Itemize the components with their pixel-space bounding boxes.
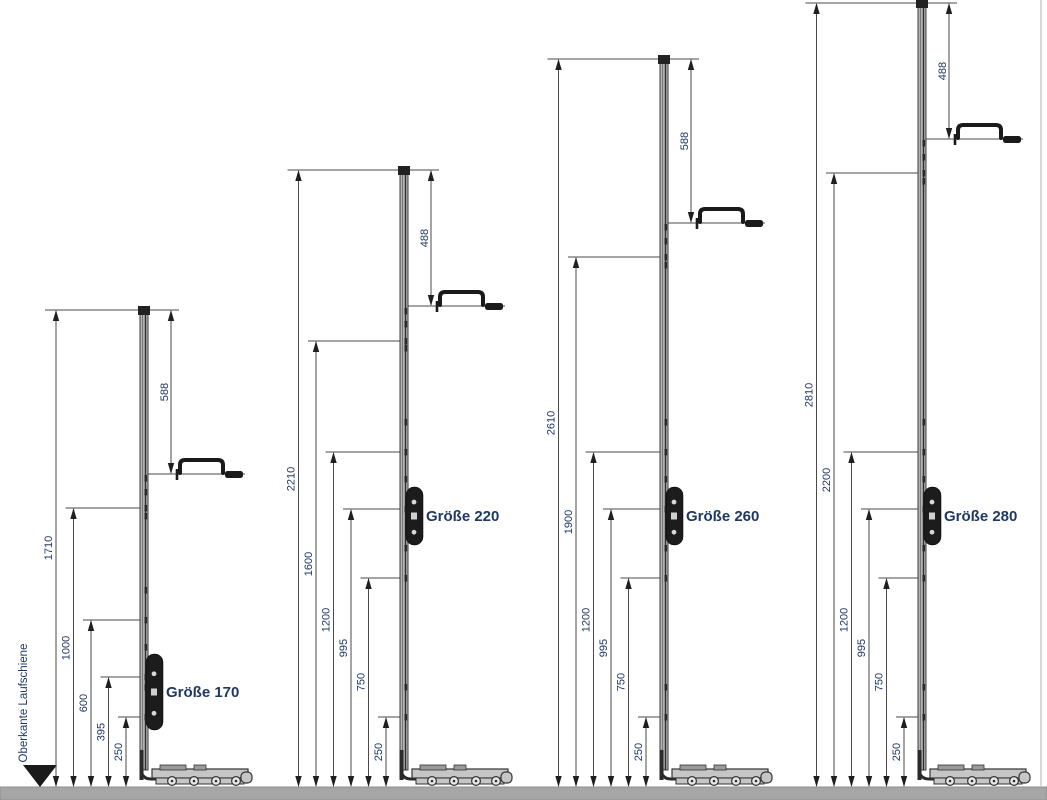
rail-tick (405, 449, 408, 456)
carriage-detail (938, 765, 964, 770)
arrowhead-up-icon (295, 170, 301, 181)
rail-profile (660, 59, 668, 770)
rail-tick (405, 338, 408, 345)
carriage-wheel-hub (993, 780, 996, 783)
arrowhead-up-icon (590, 452, 596, 463)
carriage-wheel-hub (691, 780, 694, 783)
rail-top-cap (398, 166, 410, 175)
dimension-label: 1200 (580, 608, 592, 632)
arrowhead-up-icon (365, 578, 371, 589)
carriage-wheel-hub (713, 780, 716, 783)
dimension-label: 750 (873, 673, 885, 691)
arrowhead-up-icon (866, 509, 872, 520)
arrowhead-up-icon (383, 717, 389, 728)
rail-tick (923, 154, 926, 161)
arrowhead-down-icon (608, 776, 614, 787)
handle (700, 209, 743, 222)
running-rail (0, 787, 1047, 800)
dimension-label: 1900 (563, 510, 575, 534)
rail-tick (665, 714, 668, 721)
rail-tick (923, 140, 926, 147)
rail-tick (665, 419, 668, 426)
rail-tick (145, 587, 148, 594)
arrowhead-down-icon (88, 776, 94, 787)
gear-detail (930, 500, 935, 505)
carriage-wheel-hub (453, 780, 456, 783)
reference-label: Oberkante Laufschiene (18, 628, 30, 778)
rail-top-cap (916, 0, 928, 8)
gear-detail (412, 530, 417, 535)
arrowhead-down-icon (831, 776, 837, 787)
arrowhead-up-icon (946, 3, 952, 14)
rail-tick (405, 575, 408, 582)
arrowhead-up-icon (901, 717, 907, 728)
carriage-detail (680, 765, 706, 770)
arrowhead-up-icon (831, 173, 837, 184)
arrowhead-down-icon (53, 776, 59, 787)
arrowhead-down-icon (625, 776, 631, 787)
rail-tick (145, 489, 148, 496)
arrowhead-up-icon (813, 3, 819, 14)
rail-top-cap (658, 55, 670, 64)
rail-tick (665, 684, 668, 691)
carriage-wheel-hub (171, 780, 174, 783)
handle-dimension-label: 588 (159, 383, 171, 401)
carriage-wheel-hub (215, 780, 218, 783)
arrowhead-up-icon (313, 341, 319, 352)
carriage-wheel-hub (949, 780, 952, 783)
dimension-label: 250 (113, 743, 125, 761)
rail-tick (405, 714, 408, 721)
arrowhead-up-icon (555, 59, 561, 70)
arrowhead-up-icon (105, 677, 111, 688)
handle-dimension-label: 488 (937, 62, 949, 80)
arrowhead-down-icon (428, 295, 434, 306)
handle-grip (225, 471, 243, 478)
handle (440, 292, 483, 305)
dimension-label: 1200 (838, 608, 850, 632)
arrowhead-down-icon (295, 776, 301, 787)
rail-tick (145, 513, 148, 520)
dimension-label: 2810 (803, 383, 815, 407)
handle-dimension-label: 588 (679, 132, 691, 150)
rail-tick (665, 575, 668, 582)
rail-tick (923, 684, 926, 691)
rail-tick (923, 178, 926, 185)
dimension-label: 1200 (320, 608, 332, 632)
rail-tick (923, 545, 926, 552)
rail-tick (923, 575, 926, 582)
handle (958, 125, 1001, 138)
arrowhead-down-icon (105, 776, 111, 787)
arrowhead-down-icon (643, 776, 649, 787)
carriage-wheel-hub (235, 780, 238, 783)
dimension-label: 995 (856, 639, 868, 657)
rail-profile (918, 3, 926, 770)
gear-detail (152, 711, 157, 716)
arrowhead-up-icon (573, 257, 579, 268)
rail-tick (665, 262, 668, 269)
arrowhead-down-icon (365, 776, 371, 787)
carriage-end-cap (241, 772, 252, 783)
rail-tick (923, 170, 926, 177)
arrowhead-up-icon (428, 170, 434, 181)
rail-tick (923, 714, 926, 721)
handle (180, 460, 223, 473)
carriage-wheel-hub (735, 780, 738, 783)
arrowhead-down-icon (573, 776, 579, 787)
arrowhead-down-icon (883, 776, 889, 787)
carriage-wheel-hub (475, 780, 478, 783)
gear-detail (671, 513, 677, 520)
carriage-end-cap (501, 772, 512, 783)
dimension-label: 750 (355, 673, 367, 691)
arrowhead-up-icon (883, 578, 889, 589)
arrowhead-up-icon (88, 620, 94, 631)
arrowhead-down-icon (348, 776, 354, 787)
carriage-wheel-hub (755, 780, 758, 783)
rail-tick (665, 476, 668, 483)
dimension-label: 1600 (303, 552, 315, 576)
carriage-wheel-hub (495, 780, 498, 783)
arrowhead-up-icon (348, 509, 354, 520)
dimension-label: 2210 (285, 467, 297, 491)
dimension-label: 2200 (821, 468, 833, 492)
dimension-label: 1000 (60, 636, 72, 660)
rail-profile (400, 170, 408, 770)
rail-tick (405, 321, 408, 328)
arrowhead-up-icon (625, 578, 631, 589)
arrowhead-up-icon (608, 509, 614, 520)
rail-tick (665, 254, 668, 261)
rail-tick (665, 449, 668, 456)
arrowhead-up-icon (643, 717, 649, 728)
arrowhead-down-icon (590, 776, 596, 787)
dimension-label: 2610 (545, 411, 557, 435)
dimension-label: 600 (78, 694, 90, 712)
dimension-label: 250 (373, 743, 385, 761)
arrowhead-down-icon (313, 776, 319, 787)
arrowhead-down-icon (901, 776, 907, 787)
rail-tick (405, 308, 408, 315)
size-label-280: Größe 280 (944, 508, 1017, 525)
carriage-wheel-hub (431, 780, 434, 783)
rail-tick (923, 419, 926, 426)
rail-tick (145, 505, 148, 512)
arrowhead-down-icon (688, 212, 694, 223)
arrowhead-down-icon (330, 776, 336, 787)
size-label-170: Größe 170 (166, 684, 239, 701)
dimension-label: 995 (338, 639, 350, 657)
gear-detail (411, 513, 417, 520)
gear-detail (672, 530, 677, 535)
gear-detail (930, 530, 935, 535)
rail-tick (405, 345, 408, 352)
arrowhead-down-icon (168, 463, 174, 474)
gear-detail (929, 513, 935, 520)
handle-grip (745, 220, 763, 227)
arrowhead-down-icon (813, 776, 819, 787)
technical-drawing-canvas: 1710100060039525058822101600120099575025… (0, 0, 1047, 800)
arrowhead-up-icon (123, 717, 129, 728)
handle-grip (1003, 136, 1021, 143)
dimension-label: 250 (891, 743, 903, 761)
size-label-260: Größe 260 (686, 508, 759, 525)
carriage-wheel-hub (971, 780, 974, 783)
rail-tick (145, 644, 148, 651)
rail-top-cap (138, 306, 150, 315)
arrowhead-up-icon (70, 508, 76, 519)
carriage-detail (714, 765, 726, 770)
arrowhead-down-icon (70, 776, 76, 787)
carriage-detail (420, 765, 446, 770)
arrowhead-down-icon (123, 776, 129, 787)
carriage-detail (972, 765, 984, 770)
rail-tick (665, 545, 668, 552)
arrowhead-down-icon (946, 128, 952, 139)
gear-detail (672, 500, 677, 505)
arrowhead-up-icon (53, 310, 59, 321)
carriage-wheel-hub (193, 780, 196, 783)
rail-tick (405, 684, 408, 691)
rail-tick (923, 476, 926, 483)
arrowhead-up-icon (848, 452, 854, 463)
rail-tick (923, 449, 926, 456)
dimension-label: 995 (598, 639, 610, 657)
arrowhead-down-icon (866, 776, 872, 787)
arrowhead-down-icon (848, 776, 854, 787)
arrowhead-down-icon (555, 776, 561, 787)
rail-tick (405, 419, 408, 426)
dimension-label: 395 (95, 723, 107, 741)
gear-detail (151, 689, 157, 696)
arrowhead-up-icon (688, 59, 694, 70)
handle-grip (485, 303, 503, 310)
dimension-label: 1710 (43, 536, 55, 560)
gear-detail (412, 500, 417, 505)
arrowhead-up-icon (168, 310, 174, 321)
dimension-drawing: 1710100060039525058822101600120099575025… (0, 0, 1047, 800)
carriage-detail (454, 765, 466, 770)
dimension-label: 750 (615, 673, 627, 691)
carriage-end-cap (1019, 772, 1030, 783)
handle-dimension-label: 488 (419, 229, 431, 247)
rail-tick (145, 475, 148, 482)
arrowhead-down-icon (383, 776, 389, 787)
rail-tick (665, 224, 668, 231)
rail-tick (405, 476, 408, 483)
arrowhead-up-icon (330, 452, 336, 463)
dimension-label: 250 (633, 743, 645, 761)
size-label-220: Größe 220 (426, 508, 499, 525)
rail-tick (405, 545, 408, 552)
gear-detail (152, 671, 157, 676)
carriage-detail (194, 765, 206, 770)
carriage-end-cap (761, 772, 772, 783)
carriage-wheel-hub (1013, 780, 1016, 783)
rail-tick (665, 238, 668, 245)
rail-tick (145, 617, 148, 624)
carriage-detail (160, 765, 186, 770)
